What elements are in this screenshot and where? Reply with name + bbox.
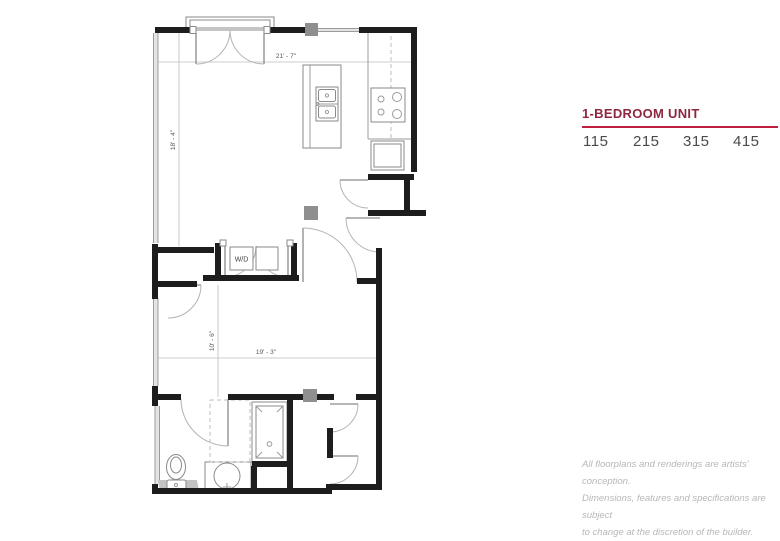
column-living-room bbox=[304, 206, 318, 220]
island-sink bbox=[316, 87, 338, 121]
floorplan-page: { "panel": { "title": "1-BEDROOM UNIT", … bbox=[0, 0, 780, 517]
cooktop bbox=[371, 88, 405, 122]
title-rule bbox=[582, 126, 778, 128]
unit-info-panel: 1-BEDROOM UNIT 115 215 315 415 All floor… bbox=[582, 0, 778, 517]
unit-number-415: 415 bbox=[733, 133, 780, 150]
dim-living-height: 18' - 4" bbox=[170, 129, 177, 150]
kitchen-counter bbox=[368, 33, 411, 139]
disclaimer: All floorplans and renderings are artist… bbox=[582, 456, 780, 541]
toilet bbox=[167, 455, 187, 492]
dim-living-width: 21' - 7" bbox=[276, 53, 297, 60]
refrigerator bbox=[371, 141, 404, 170]
unit-number-215: 215 bbox=[633, 133, 683, 150]
disclaimer-line-3: to change at the discretion of the build… bbox=[582, 524, 780, 541]
unit-number-115: 115 bbox=[583, 133, 633, 150]
dim-bedroom-width: 19' - 3" bbox=[256, 349, 277, 356]
balcony-french-doors bbox=[196, 30, 264, 64]
linen-closet-doors bbox=[330, 404, 358, 484]
disclaimer-line-1: All floorplans and renderings are artist… bbox=[582, 456, 780, 490]
unit-number-list: 115 215 315 415 bbox=[583, 133, 780, 150]
hall-closet-door bbox=[168, 285, 201, 318]
bedroom-door bbox=[303, 228, 357, 282]
unit-entry-door bbox=[346, 218, 380, 252]
balcony-slab bbox=[186, 17, 274, 30]
kitchen-hall-door bbox=[340, 180, 368, 208]
dim-bedroom-height: 10' - 6" bbox=[209, 330, 216, 351]
vanity-sink bbox=[205, 462, 251, 491]
tub-outline bbox=[210, 400, 250, 462]
shower bbox=[252, 402, 287, 462]
kitchen bbox=[303, 33, 411, 170]
page-title: 1-BEDROOM UNIT bbox=[582, 106, 700, 121]
bathroom-door bbox=[181, 399, 228, 446]
kitchen-island bbox=[303, 65, 341, 148]
washer-dryer-label: W/D bbox=[235, 257, 249, 264]
disclaimer-line-2: Dimensions, features and specifications … bbox=[582, 490, 780, 524]
column-top-wall bbox=[305, 23, 318, 36]
interior-walls bbox=[157, 177, 426, 491]
column-bedroom-wall bbox=[303, 389, 317, 402]
unit-number-315: 315 bbox=[683, 133, 733, 150]
floorplan-drawing: 21' - 7" 18' - 4" 19' - 3" 10' - 6" bbox=[0, 0, 560, 517]
